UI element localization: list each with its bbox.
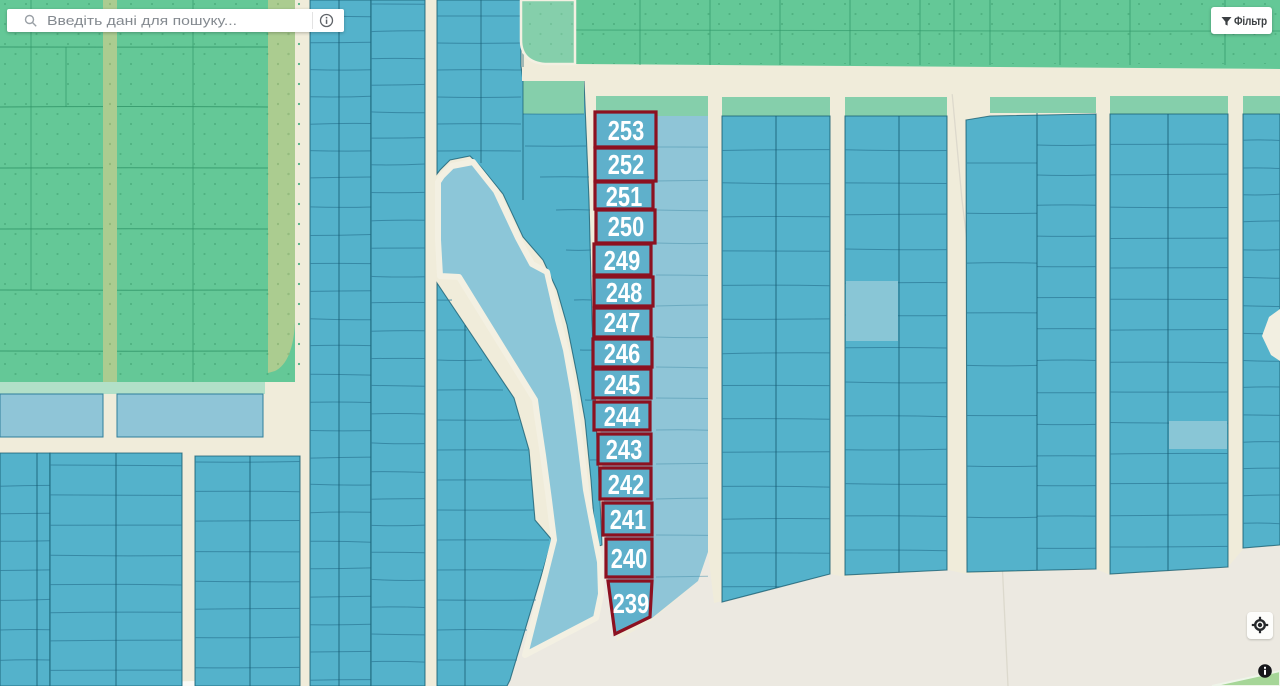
svg-text:Введіть дані для пошуку...: Введіть дані для пошуку... bbox=[47, 13, 237, 28]
svg-text:251: 251 bbox=[606, 181, 642, 212]
svg-text:252: 252 bbox=[608, 149, 644, 180]
svg-text:253: 253 bbox=[608, 115, 644, 146]
svg-text:247: 247 bbox=[604, 307, 640, 338]
svg-text:243: 243 bbox=[606, 434, 642, 465]
svg-text:250: 250 bbox=[608, 211, 644, 242]
svg-text:249: 249 bbox=[604, 245, 640, 276]
svg-text:240: 240 bbox=[611, 543, 647, 574]
svg-text:241: 241 bbox=[610, 504, 646, 535]
svg-text:245: 245 bbox=[604, 369, 640, 400]
svg-text:242: 242 bbox=[608, 469, 644, 500]
svg-text:248: 248 bbox=[606, 277, 642, 308]
svg-text:Фільтр: Фільтр bbox=[1234, 16, 1267, 28]
svg-text:239: 239 bbox=[613, 588, 649, 619]
svg-text:244: 244 bbox=[604, 401, 640, 432]
svg-text:246: 246 bbox=[604, 338, 640, 369]
